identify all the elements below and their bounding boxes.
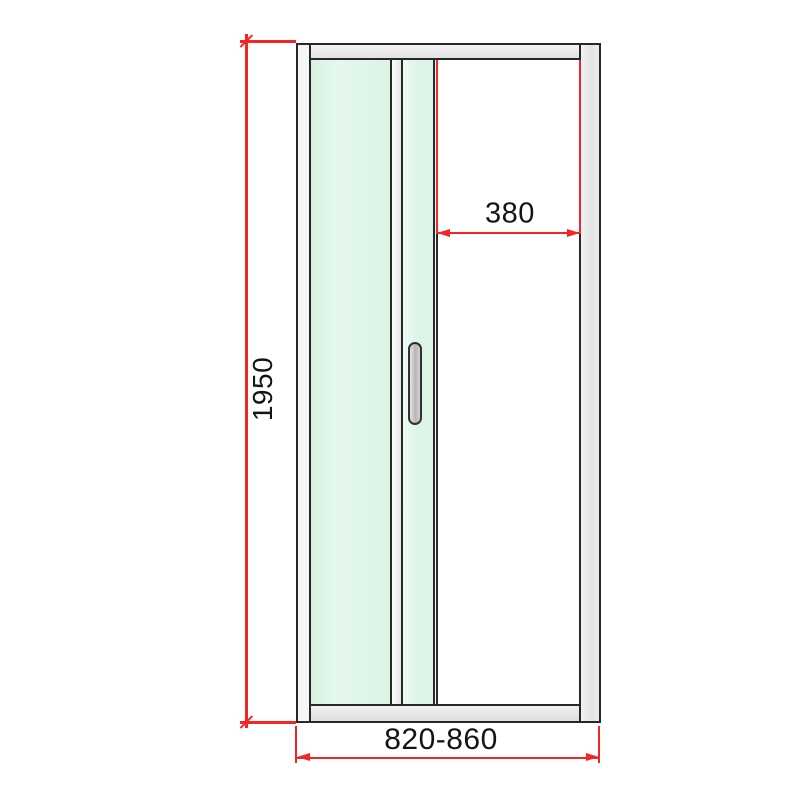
door-handle [408, 342, 422, 425]
overall-width-arrow-right [586, 753, 599, 761]
entry-width-dimension-line [437, 232, 581, 234]
overall-width-dimension-line [296, 757, 600, 759]
left-wall-profile [298, 45, 311, 721]
overall-width-dimension-label: 820-860 [384, 723, 498, 757]
entry-width-extension-left [436, 60, 438, 235]
entry-width-dimension-label: 380 [485, 198, 535, 231]
entry-opening [438, 60, 579, 704]
right-wall-profile [579, 45, 599, 721]
shower-door-technical-drawing: 1950 380 820-860 [0, 0, 800, 800]
bottom-rail [311, 704, 579, 722]
entry-width-arrow-left [437, 229, 450, 237]
center-mullion-profile [390, 60, 403, 704]
overall-width-arrow-left [297, 753, 310, 761]
entry-width-arrow-right [567, 229, 580, 237]
entry-width-extension-right [579, 60, 581, 235]
height-dimension-label: 1950 [247, 357, 279, 421]
fixed-glass-panel [311, 60, 390, 704]
top-rail [311, 45, 579, 60]
